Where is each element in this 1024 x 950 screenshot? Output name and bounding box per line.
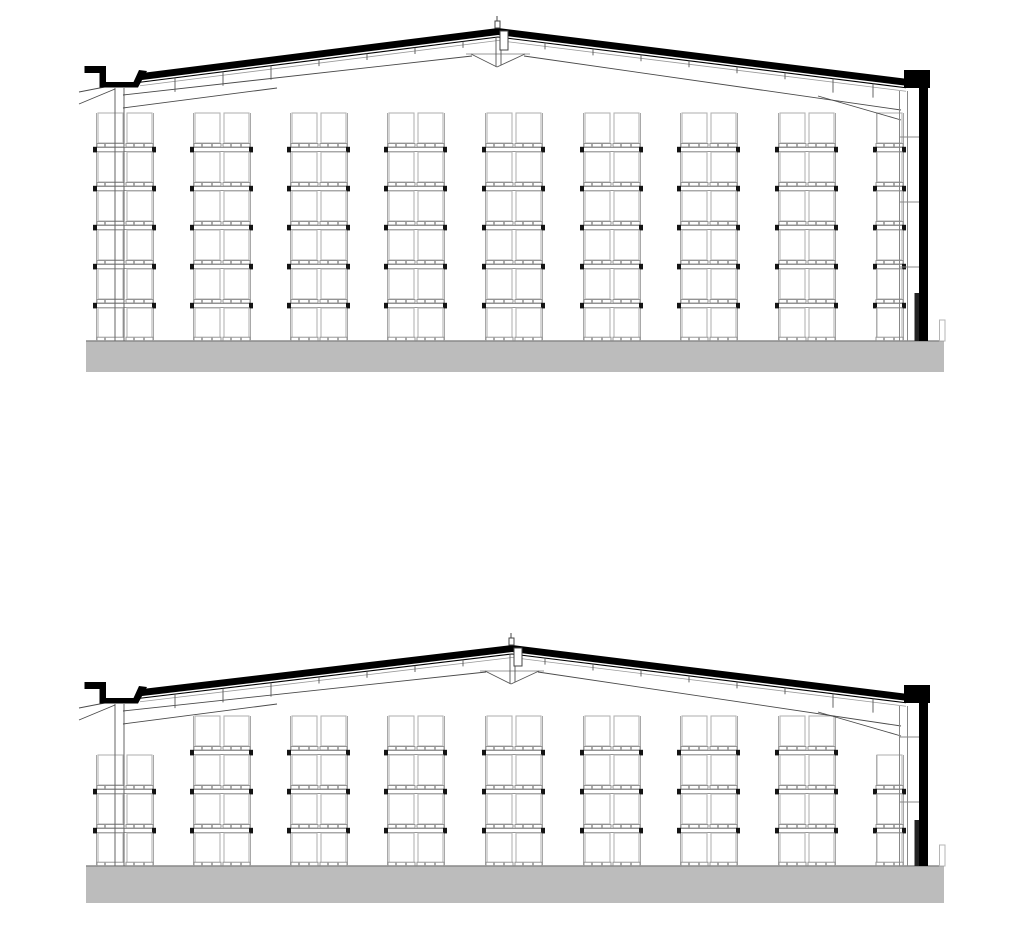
pallet-box <box>321 113 346 143</box>
beam-end-cap <box>902 303 906 309</box>
pallet-box <box>292 755 317 785</box>
pallet-box <box>487 755 512 785</box>
rack-beam <box>385 187 446 191</box>
pallet-box <box>195 152 220 182</box>
rack-bay <box>775 716 838 866</box>
pallet-box <box>682 191 707 221</box>
beam-end-cap <box>482 303 486 309</box>
pallet-box <box>389 113 414 143</box>
pallet-box <box>780 833 805 863</box>
pallet-box <box>321 269 346 299</box>
beam-end-cap <box>580 303 584 309</box>
pallet-box <box>682 152 707 182</box>
beam-end-cap <box>152 828 156 834</box>
beam-end-cap <box>902 225 906 231</box>
pallet-box <box>711 230 736 260</box>
pallet-box <box>389 152 414 182</box>
beam-end-cap <box>384 303 388 309</box>
rack-beam <box>581 304 642 308</box>
pallet-box <box>682 794 707 824</box>
beam-end-cap <box>902 828 906 834</box>
pallet-box <box>809 308 834 338</box>
beam-end-cap <box>580 789 584 795</box>
roof-slope-left <box>138 28 498 81</box>
beam-end-cap <box>249 186 253 192</box>
beam-end-cap <box>541 147 545 153</box>
pallet-box <box>516 755 541 785</box>
pallet-box <box>224 191 249 221</box>
beam-end-cap <box>775 303 779 309</box>
rack-beam <box>385 751 446 755</box>
pallet-box <box>809 113 834 143</box>
eaves-gutter <box>85 66 148 88</box>
ridge-cap <box>495 21 500 28</box>
rack-beam <box>581 829 642 833</box>
beam-end-cap <box>902 789 906 795</box>
beam-end-cap <box>873 789 877 795</box>
pallet-box <box>780 269 805 299</box>
pallet-box <box>487 230 512 260</box>
ridge-cap <box>509 638 514 645</box>
pallet-box <box>195 794 220 824</box>
wall-section <box>919 88 928 341</box>
pallet-box <box>682 269 707 299</box>
rack-beam <box>191 790 252 794</box>
roof-band <box>138 28 908 98</box>
beam-end-cap <box>190 750 194 756</box>
beam-end-cap <box>443 303 447 309</box>
rack-beam <box>874 790 905 794</box>
rack-beam <box>483 148 544 152</box>
rack-beam <box>776 829 837 833</box>
pallet-box <box>780 152 805 182</box>
building-section-lower <box>79 633 945 903</box>
pallet-box <box>682 833 707 863</box>
rack-beam <box>874 829 905 833</box>
rack-beam <box>581 751 642 755</box>
rack-beam <box>191 187 252 191</box>
rack-beam <box>483 790 544 794</box>
beam-end-cap <box>249 789 253 795</box>
pallet-box <box>127 230 152 260</box>
pallet-box <box>195 833 220 863</box>
beam-end-cap <box>190 303 194 309</box>
pallet-box <box>877 833 902 863</box>
pallet-box <box>127 833 152 863</box>
rack-bay-single <box>873 755 906 866</box>
beam-end-cap <box>541 186 545 192</box>
pallet-box <box>127 191 152 221</box>
wall-section <box>919 703 928 866</box>
beam-end-cap <box>384 789 388 795</box>
beam-end-cap <box>482 828 486 834</box>
pallet-box <box>780 230 805 260</box>
beam-end-cap <box>736 264 740 270</box>
pallet-box <box>195 755 220 785</box>
beam-end-cap <box>346 264 350 270</box>
rack-beam <box>385 304 446 308</box>
beam-end-cap <box>775 225 779 231</box>
beam-end-cap <box>677 303 681 309</box>
beam-end-cap <box>384 225 388 231</box>
slab-edge-curb <box>940 320 946 341</box>
beam-end-cap <box>639 225 643 231</box>
beam-end-cap <box>152 303 156 309</box>
pallet-box <box>127 755 152 785</box>
pallet-box <box>389 755 414 785</box>
left-cut-lines <box>79 85 115 104</box>
pallet-box <box>389 833 414 863</box>
pallet-box <box>711 794 736 824</box>
pallet-box <box>585 833 610 863</box>
rack-beam <box>581 187 642 191</box>
beam-end-cap <box>93 225 97 231</box>
pallet-box <box>877 755 902 785</box>
roof-slope-right <box>498 28 908 86</box>
beam-end-cap <box>736 750 740 756</box>
pallet-box <box>98 230 123 260</box>
pallet-box <box>418 755 443 785</box>
rack-bay <box>287 113 350 341</box>
pallet-box <box>292 716 317 746</box>
beam-end-cap <box>287 225 291 231</box>
beam-end-cap <box>249 750 253 756</box>
pallet-box <box>711 113 736 143</box>
beam-end-cap <box>639 303 643 309</box>
beam-end-cap <box>384 186 388 192</box>
rack-beam <box>288 829 349 833</box>
pallet-box <box>682 113 707 143</box>
pallet-box <box>614 716 639 746</box>
beam-end-cap <box>152 186 156 192</box>
rack-beam <box>483 265 544 269</box>
beam-end-cap <box>443 264 447 270</box>
beam-end-cap <box>190 828 194 834</box>
pallet-box <box>292 833 317 863</box>
rack-beam <box>678 187 739 191</box>
pallet-box <box>418 230 443 260</box>
pallet-box <box>487 794 512 824</box>
pallet-box <box>516 269 541 299</box>
beam-end-cap <box>482 789 486 795</box>
pallet-box <box>487 113 512 143</box>
rack-beam <box>288 226 349 230</box>
beam-end-cap <box>873 147 877 153</box>
rack-bay <box>677 716 740 866</box>
rack-bay <box>482 716 545 866</box>
pallet-box <box>682 755 707 785</box>
parapet-cap <box>904 685 930 703</box>
pallet-box <box>224 230 249 260</box>
rack-beam <box>385 790 446 794</box>
beam-end-cap <box>384 147 388 153</box>
beam-end-cap <box>677 225 681 231</box>
pallet-box <box>516 308 541 338</box>
rack-bay <box>580 716 643 866</box>
pallet-box <box>877 308 902 338</box>
pallet-box <box>877 191 902 221</box>
rack-beam <box>776 265 837 269</box>
pallet-box <box>389 191 414 221</box>
beam-end-cap <box>902 147 906 153</box>
pallet-box <box>389 230 414 260</box>
rack-bay <box>482 113 545 341</box>
rack-bay-single <box>873 113 906 341</box>
rack-beam <box>483 829 544 833</box>
pallet-box <box>614 269 639 299</box>
pallet-box <box>585 152 610 182</box>
beam-end-cap <box>152 264 156 270</box>
beam-end-cap <box>287 264 291 270</box>
pallet-box <box>98 794 123 824</box>
beam-end-cap <box>775 264 779 270</box>
pallet-box <box>127 152 152 182</box>
pallet-box <box>585 269 610 299</box>
beam-end-cap <box>152 147 156 153</box>
beam-end-cap <box>639 750 643 756</box>
rack-beam <box>874 304 905 308</box>
beam-end-cap <box>541 264 545 270</box>
rack-beam <box>776 226 837 230</box>
beam-end-cap <box>190 147 194 153</box>
beam-end-cap <box>873 186 877 192</box>
beam-end-cap <box>902 186 906 192</box>
pallet-box <box>98 755 123 785</box>
pallet-box <box>224 308 249 338</box>
pallet-box <box>809 755 834 785</box>
beam-end-cap <box>482 264 486 270</box>
pallet-box <box>292 269 317 299</box>
beam-end-cap <box>443 186 447 192</box>
rack-beam <box>678 304 739 308</box>
rack-beam <box>288 790 349 794</box>
beam-end-cap <box>677 147 681 153</box>
rack-beam <box>483 226 544 230</box>
roof-slope-right <box>512 645 908 701</box>
beam-end-cap <box>639 828 643 834</box>
beam-end-cap <box>677 789 681 795</box>
pallet-box <box>585 755 610 785</box>
wall-inner-post <box>915 293 920 341</box>
pallet-box <box>516 113 541 143</box>
pallet-box <box>127 269 152 299</box>
pallet-box <box>418 191 443 221</box>
beam-end-cap <box>249 303 253 309</box>
pallet-box <box>321 152 346 182</box>
pallet-box <box>585 716 610 746</box>
pallet-box <box>614 755 639 785</box>
pallet-box <box>711 269 736 299</box>
beam-end-cap <box>541 750 545 756</box>
beam-end-cap <box>834 789 838 795</box>
beam-end-cap <box>775 789 779 795</box>
rack-beam <box>385 226 446 230</box>
rack-bay <box>677 113 740 341</box>
beam-end-cap <box>93 303 97 309</box>
beam-end-cap <box>346 789 350 795</box>
beam-end-cap <box>736 828 740 834</box>
pallet-box <box>614 308 639 338</box>
rack-beam <box>678 751 739 755</box>
pallet-box <box>780 308 805 338</box>
pallet-box <box>418 716 443 746</box>
pallet-box <box>224 113 249 143</box>
beam-end-cap <box>152 789 156 795</box>
pallet-box <box>516 230 541 260</box>
pallet-box <box>224 833 249 863</box>
rack-beam <box>288 751 349 755</box>
pallet-box <box>321 755 346 785</box>
beam-end-cap <box>249 225 253 231</box>
pallet-box <box>516 152 541 182</box>
ridge-beam <box>514 648 522 666</box>
building-section-upper <box>79 16 945 372</box>
beam-end-cap <box>346 750 350 756</box>
pallet-box <box>195 308 220 338</box>
beam-end-cap <box>249 828 253 834</box>
pallet-box <box>321 191 346 221</box>
beam-end-cap <box>249 147 253 153</box>
beam-end-cap <box>346 186 350 192</box>
rack-bay <box>190 716 253 866</box>
pallet-box <box>780 794 805 824</box>
pallet-box <box>780 716 805 746</box>
beam-end-cap <box>93 828 97 834</box>
pallet-box <box>389 794 414 824</box>
beam-end-cap <box>639 789 643 795</box>
beam-end-cap <box>346 828 350 834</box>
rack-beam <box>385 265 446 269</box>
beam-end-cap <box>541 225 545 231</box>
rack-beam <box>288 265 349 269</box>
architectural-drawing-page <box>0 0 1024 950</box>
beam-end-cap <box>287 186 291 192</box>
beam-end-cap <box>580 147 584 153</box>
pallet-box <box>516 833 541 863</box>
rack-beam <box>191 751 252 755</box>
pallet-box <box>98 152 123 182</box>
pallet-box <box>711 308 736 338</box>
beam-end-cap <box>443 147 447 153</box>
beam-end-cap <box>287 750 291 756</box>
pallet-box <box>711 152 736 182</box>
beam-end-cap <box>736 186 740 192</box>
pallet-box <box>321 833 346 863</box>
pallet-box <box>321 308 346 338</box>
beam-end-cap <box>677 264 681 270</box>
ridge-beam <box>500 31 508 50</box>
pallet-box <box>711 716 736 746</box>
beam-end-cap <box>541 828 545 834</box>
rack-beam <box>581 226 642 230</box>
pallet-box <box>292 230 317 260</box>
rack-beam <box>678 148 739 152</box>
ridge-apex-detail <box>466 16 530 67</box>
pallet-box <box>585 113 610 143</box>
pallet-box <box>389 308 414 338</box>
rack-beam <box>483 751 544 755</box>
pallet-box <box>809 152 834 182</box>
pallet-box <box>224 755 249 785</box>
beam-end-cap <box>834 750 838 756</box>
beam-end-cap <box>541 789 545 795</box>
beam-end-cap <box>384 264 388 270</box>
rack-beam <box>385 148 446 152</box>
pallet-box <box>585 794 610 824</box>
pallet-box <box>780 191 805 221</box>
pallet-box <box>809 716 834 746</box>
pallet-box <box>877 269 902 299</box>
beam-end-cap <box>873 264 877 270</box>
beam-end-cap <box>580 828 584 834</box>
pallet-box <box>516 794 541 824</box>
beam-end-cap <box>677 186 681 192</box>
beam-end-cap <box>775 186 779 192</box>
pallet-box <box>195 716 220 746</box>
beam-end-cap <box>384 750 388 756</box>
ridge-apex-detail <box>480 633 544 684</box>
beam-end-cap <box>443 225 447 231</box>
beam-end-cap <box>639 147 643 153</box>
pallet-box <box>516 716 541 746</box>
rack-beam <box>191 226 252 230</box>
pallet-box <box>809 191 834 221</box>
beam-end-cap <box>834 147 838 153</box>
pallet-box <box>711 833 736 863</box>
rack-beam <box>776 187 837 191</box>
rack-beam <box>288 148 349 152</box>
pallet-box <box>487 308 512 338</box>
beam-end-cap <box>775 828 779 834</box>
beam-end-cap <box>775 750 779 756</box>
beam-end-cap <box>736 147 740 153</box>
beam-end-cap <box>873 225 877 231</box>
pallet-box <box>614 833 639 863</box>
beam-end-cap <box>346 303 350 309</box>
rack-beam <box>483 187 544 191</box>
beam-end-cap <box>873 303 877 309</box>
rack-beam <box>874 226 905 230</box>
pallet-box <box>809 833 834 863</box>
rack-bay <box>775 113 838 341</box>
pallet-box <box>98 113 123 143</box>
beam-end-cap <box>152 225 156 231</box>
pallet-box <box>682 716 707 746</box>
pallet-box <box>614 113 639 143</box>
beam-end-cap <box>834 225 838 231</box>
rack-bay <box>384 716 447 866</box>
pallet-box <box>195 113 220 143</box>
rack-bay <box>580 113 643 341</box>
rack-beam <box>288 304 349 308</box>
pallet-box <box>418 269 443 299</box>
pallet-box <box>585 230 610 260</box>
beam-end-cap <box>287 303 291 309</box>
pallet-box <box>418 833 443 863</box>
rack-beam <box>776 790 837 794</box>
pallet-box <box>292 191 317 221</box>
beam-end-cap <box>384 828 388 834</box>
rack-bay <box>384 113 447 341</box>
rack-beam <box>678 790 739 794</box>
rack-beam <box>678 265 739 269</box>
beam-end-cap <box>873 828 877 834</box>
beam-end-cap <box>834 828 838 834</box>
pallet-box <box>780 113 805 143</box>
pallet-box <box>487 191 512 221</box>
beam-end-cap <box>677 750 681 756</box>
beam-end-cap <box>482 186 486 192</box>
